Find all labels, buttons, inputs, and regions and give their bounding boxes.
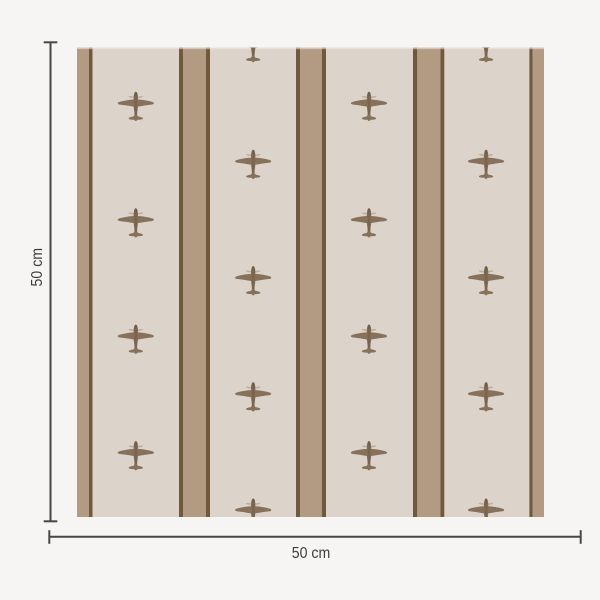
svg-text:50 cm: 50 cm bbox=[292, 545, 331, 562]
svg-text:50 cm: 50 cm bbox=[29, 248, 46, 287]
